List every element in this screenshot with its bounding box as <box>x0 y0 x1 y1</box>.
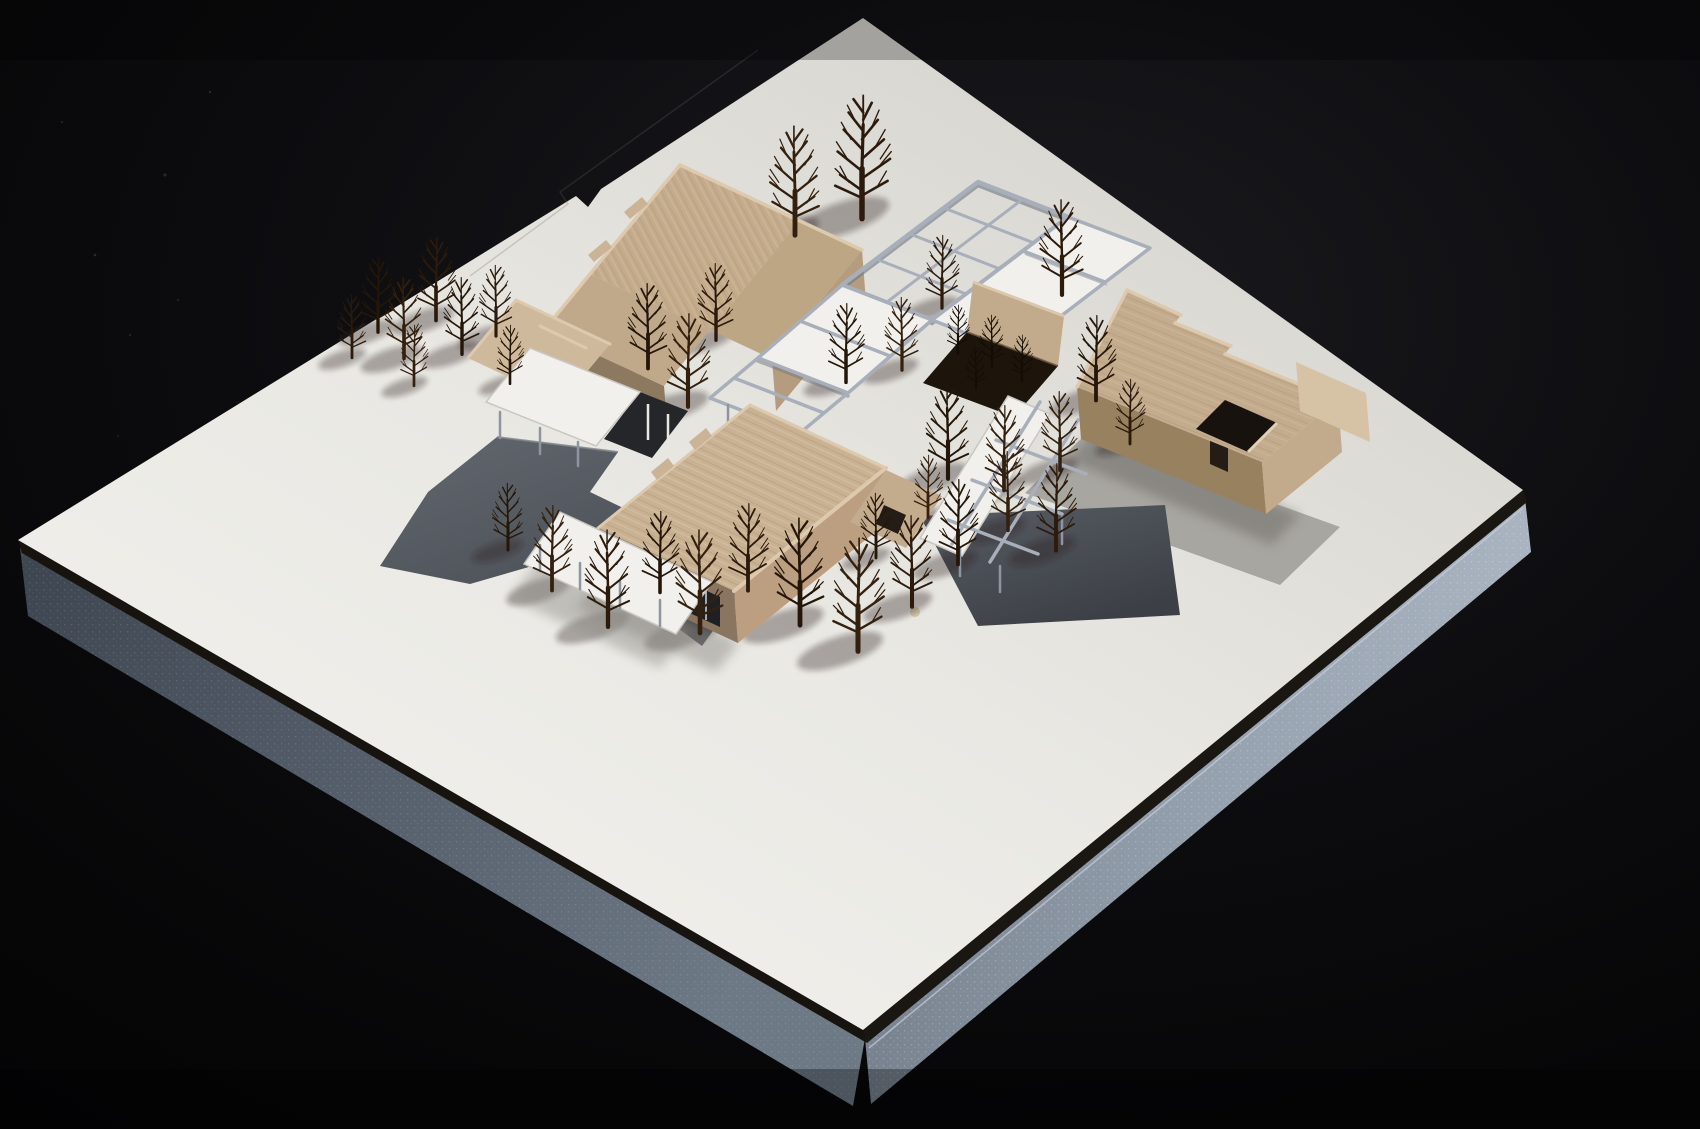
model-photo-stage <box>0 0 1700 1129</box>
architectural-model-photo <box>0 0 1700 1129</box>
